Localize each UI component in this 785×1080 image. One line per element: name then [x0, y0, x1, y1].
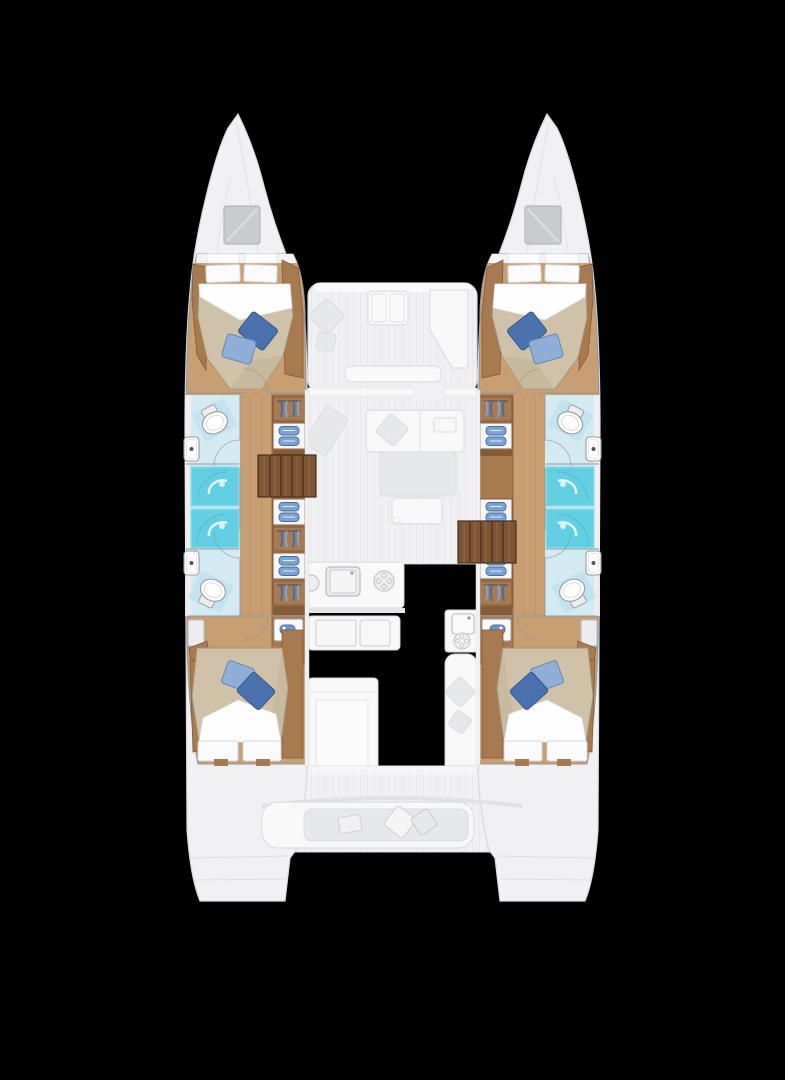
saloon-table [380, 452, 456, 496]
floor-plan-canvas [0, 0, 785, 1080]
fwd-bench [345, 366, 441, 382]
cushion [316, 332, 337, 353]
starboard-hull [476, 114, 601, 901]
catamaran-floor-plan [0, 0, 785, 1080]
galley [303, 562, 479, 780]
stove-burners [374, 571, 394, 591]
cockpit-table [368, 291, 408, 325]
stern-notch [295, 853, 490, 913]
starboard-companionway [458, 521, 516, 563]
forward-cockpit [308, 283, 477, 393]
port-companionway [258, 455, 316, 497]
port-hull [184, 114, 309, 901]
cushion [338, 814, 362, 834]
saloon [303, 387, 477, 564]
